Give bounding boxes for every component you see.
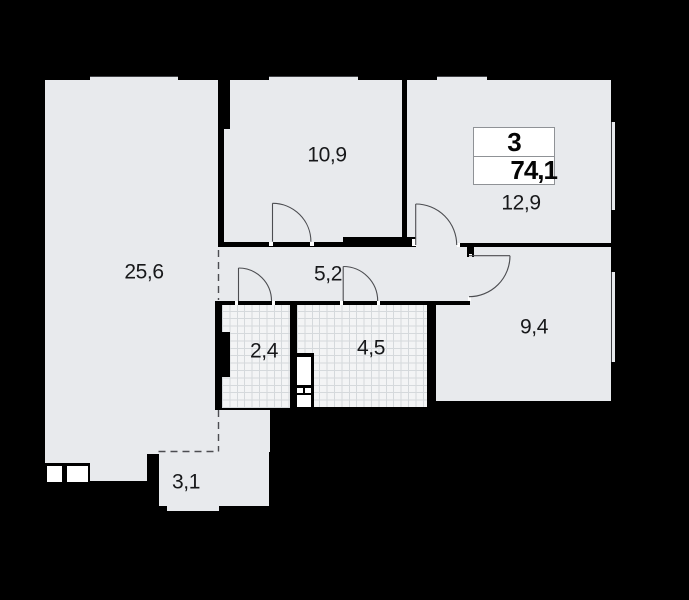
area-label-living: 25,6 — [124, 262, 163, 283]
area-label-bedroom-right: 12,9 — [501, 193, 540, 214]
floor-plan: 25,6 10,9 12,9 5,2 2,4 4,5 9,4 3,1 3 74,… — [0, 0, 689, 600]
badge-rooms-count: 3 — [507, 129, 520, 155]
door-arc-wc — [239, 268, 272, 301]
door-arc-bathroom — [343, 267, 378, 302]
door-arc-bedroom-small — [469, 256, 510, 297]
door-arc-bedroom-top — [273, 203, 311, 241]
area-label-bedroom-top: 10,9 — [307, 145, 346, 166]
area-label-corridor: 5,2 — [314, 264, 342, 285]
area-label-bathroom: 4,5 — [357, 338, 385, 359]
area-label-wc: 2,4 — [250, 341, 278, 362]
badge-total-area: 74,1 — [510, 157, 557, 183]
info-badge: 3 74,1 — [473, 127, 555, 185]
door-swings-layer — [0, 0, 689, 600]
badge-rooms-cell: 3 — [474, 128, 554, 157]
badge-area-cell: 74,1 — [474, 157, 554, 185]
door-arc-bedroom-right — [416, 204, 457, 245]
area-label-balcony: 3,1 — [172, 472, 200, 493]
area-label-bedroom-small: 9,4 — [520, 317, 548, 338]
